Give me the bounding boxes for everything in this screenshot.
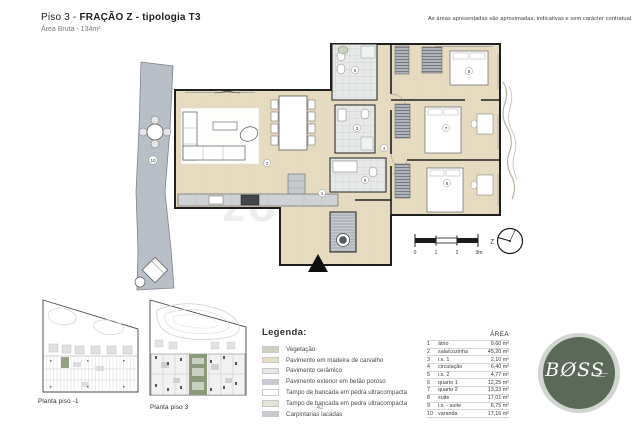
scale-tick-1: 1 bbox=[435, 250, 438, 256]
compass-icon: Z bbox=[490, 229, 522, 254]
legend-item-bancada-2: Tampo de bancada em pedra ultracompacta bbox=[262, 398, 422, 409]
mini-plan-piso-minus1 bbox=[35, 296, 141, 398]
mini-plan-piso3 bbox=[147, 292, 249, 404]
table-row: 7quarto 213,23 m² bbox=[427, 386, 509, 394]
plant-icon bbox=[338, 46, 348, 54]
legend-swatch bbox=[262, 346, 279, 353]
table-row: 3i.s. 12,10 m² bbox=[427, 355, 509, 363]
room-label-sala: 2 bbox=[266, 161, 269, 166]
title-prefix: Piso 3 - bbox=[41, 12, 79, 23]
logo-tagline-line bbox=[596, 376, 605, 377]
table-row: 2sala/cozinha45,20 m² bbox=[427, 348, 509, 356]
room-label-atrio: 1 bbox=[321, 191, 324, 196]
legend-swatch bbox=[262, 368, 279, 375]
table-row: 1átrio9,60 m² bbox=[427, 340, 509, 348]
disclaimer-text: As áreas apresentadas são aproximadas, i… bbox=[428, 16, 633, 22]
room-label-is1: 3 bbox=[356, 126, 359, 131]
legend-item-vegetacao: Vegetação bbox=[262, 344, 422, 355]
highlight-unit bbox=[61, 357, 69, 368]
room-label-suite: 8 bbox=[468, 69, 471, 74]
title-fraction: FRAÇÃO Z - tipologia T3 bbox=[79, 12, 200, 23]
legend-item-bancada-1: Tampo de bancada em pedra ultracompacta bbox=[262, 387, 422, 398]
vegetation bbox=[503, 82, 517, 199]
scale-bar: 0 1 2 3m bbox=[414, 234, 483, 256]
table-row: 9i.s. - suite6,75 m² bbox=[427, 402, 509, 410]
compass-label: Z bbox=[490, 240, 494, 246]
area-table-header: ÁREA bbox=[427, 331, 509, 340]
table-row: 10varanda17,16 m² bbox=[427, 409, 509, 418]
legend-item-madeira: Pavimento em madeira de carvalho bbox=[262, 355, 422, 366]
scale-tick-0: 0 bbox=[414, 250, 417, 256]
table-row: 6quarto 112,25 m² bbox=[427, 378, 509, 386]
page-number: 42 bbox=[308, 404, 332, 411]
legend-title: Legenda: bbox=[262, 327, 422, 338]
main-floor-plan: 1 2 3 4 5 6 7 8 9 10 bbox=[125, 34, 525, 296]
legend-swatch bbox=[262, 389, 279, 396]
mini-plan-piso3-label: Planta piso 3 bbox=[150, 404, 188, 411]
room-label-is2: 5 bbox=[354, 68, 357, 73]
logo-tagline-line bbox=[596, 373, 608, 374]
balcony-table bbox=[147, 124, 163, 140]
scale-tick-3m: 3m bbox=[476, 250, 483, 256]
table-row: 5i.s. 24,77 m² bbox=[427, 371, 509, 379]
legend-item-ceramico: Pavimento cerâmico bbox=[262, 366, 422, 377]
boss-logo: BØSS bbox=[538, 333, 620, 413]
logo-text: BØSS bbox=[545, 359, 605, 381]
gross-area-subtitle: Área Bruta - 134m² bbox=[41, 26, 101, 33]
page-title: Piso 3 - FRAÇÃO Z - tipologia T3 bbox=[41, 12, 201, 23]
legend-item-carpintarias: Carpintarias lacadas bbox=[262, 409, 422, 420]
table-row: 4circulação6,40 m² bbox=[427, 363, 509, 371]
bathroom-suite bbox=[330, 158, 386, 192]
plan-sheet: Piso 3 - FRAÇÃO Z - tipologia T3 Área Br… bbox=[0, 0, 640, 425]
table-row: 8suite17,01 m² bbox=[427, 394, 509, 402]
entry-stair-block bbox=[330, 212, 356, 252]
mini-plan-piso-minus1-label: Planta piso -1 bbox=[38, 398, 79, 405]
room-label-circulacao: 4 bbox=[383, 146, 386, 151]
room-label-quarto2: 7 bbox=[445, 126, 448, 131]
room-label-quarto1: 6 bbox=[446, 181, 449, 186]
legend-swatch bbox=[262, 400, 279, 407]
room-label-is-suite: 9 bbox=[364, 178, 367, 183]
area-table: ÁREA 1átrio9,60 m² 2sala/cozinha45,20 m²… bbox=[427, 331, 509, 418]
legend: Legenda: Vegetação Pavimento em madeira … bbox=[262, 327, 422, 420]
room-label-varanda: 10 bbox=[150, 158, 156, 163]
legend-item-betao: Pavimento exterior em betão poroso bbox=[262, 376, 422, 387]
legend-swatch bbox=[262, 411, 279, 418]
legend-swatch bbox=[262, 357, 279, 364]
legend-swatch bbox=[262, 379, 279, 386]
scale-tick-2: 2 bbox=[456, 250, 459, 256]
balcony-varanda bbox=[135, 62, 174, 290]
